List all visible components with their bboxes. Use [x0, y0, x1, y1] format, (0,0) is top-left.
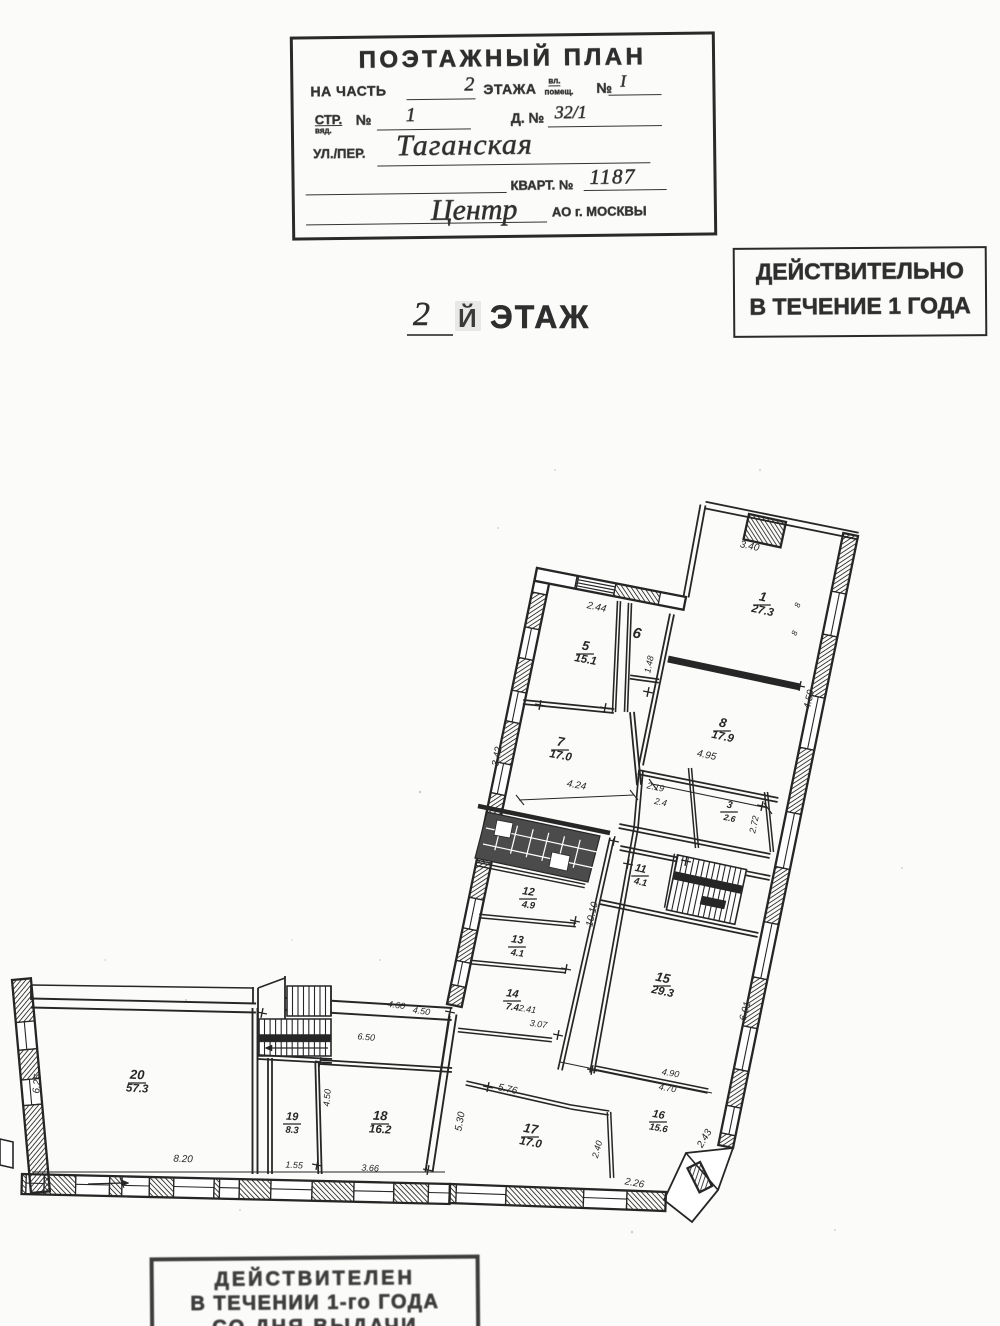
svg-text:2.40: 2.40: [590, 1139, 604, 1159]
svg-text:8: 8: [718, 715, 729, 731]
svg-text:13: 13: [511, 933, 525, 947]
svg-text:1.55: 1.55: [285, 1160, 304, 1171]
svg-text:7: 7: [556, 734, 566, 750]
svg-text:2.43: 2.43: [695, 1127, 715, 1151]
svg-text:2.6: 2.6: [722, 812, 737, 825]
svg-text:2.72: 2.72: [747, 815, 761, 835]
svg-text:2.4: 2.4: [652, 796, 667, 809]
svg-text:17.0: 17.0: [518, 1135, 543, 1151]
svg-text:8: 8: [793, 601, 803, 609]
svg-text:57.3: 57.3: [126, 1082, 150, 1095]
svg-text:4.50: 4.50: [412, 1005, 431, 1017]
svg-text:1: 1: [758, 589, 768, 605]
svg-text:3: 3: [726, 800, 734, 812]
svg-text:6: 6: [631, 624, 643, 642]
svg-text:19: 19: [286, 1111, 300, 1124]
svg-text:4.95: 4.95: [696, 748, 718, 763]
svg-text:10.10: 10.10: [584, 901, 600, 928]
svg-text:29.3: 29.3: [649, 984, 675, 1001]
svg-text:4.90: 4.90: [661, 1067, 680, 1080]
svg-text:17.9: 17.9: [710, 729, 735, 746]
svg-text:20: 20: [129, 1067, 146, 1083]
svg-text:8.3: 8.3: [285, 1125, 299, 1137]
svg-text:2.41: 2.41: [517, 1003, 537, 1015]
svg-text:17: 17: [522, 1120, 540, 1137]
svg-text:8.20: 8.20: [173, 1154, 193, 1166]
svg-text:16: 16: [651, 1108, 666, 1122]
svg-text:4.50: 4.50: [321, 1089, 332, 1107]
svg-text:11: 11: [634, 862, 648, 876]
svg-text:18: 18: [373, 1108, 389, 1124]
svg-text:5.30: 5.30: [453, 1111, 467, 1133]
svg-text:5: 5: [581, 638, 591, 654]
svg-text:4.1: 4.1: [632, 876, 648, 890]
svg-text:27.3: 27.3: [749, 603, 775, 620]
svg-text:16.2: 16.2: [369, 1123, 393, 1136]
svg-text:2.44: 2.44: [585, 600, 608, 615]
svg-text:15.6: 15.6: [648, 1122, 669, 1136]
svg-text:6.25: 6.25: [31, 1073, 44, 1094]
svg-text:4.60: 4.60: [387, 999, 406, 1011]
svg-text:6.50: 6.50: [357, 1031, 375, 1042]
svg-text:4.70: 4.70: [658, 1082, 677, 1095]
svg-text:1.48: 1.48: [642, 655, 655, 674]
svg-text:15.1: 15.1: [573, 652, 597, 668]
svg-text:17.0: 17.0: [548, 748, 573, 764]
svg-text:4.9: 4.9: [520, 899, 536, 912]
svg-text:3.07: 3.07: [529, 1018, 549, 1030]
svg-text:2.19: 2.19: [645, 780, 665, 794]
svg-text:12: 12: [522, 885, 536, 899]
svg-text:5.76: 5.76: [497, 1082, 519, 1097]
svg-text:2.26: 2.26: [623, 1176, 645, 1190]
svg-text:4.1: 4.1: [509, 947, 525, 960]
svg-text:4.24: 4.24: [566, 778, 588, 792]
svg-text:14: 14: [506, 987, 520, 1001]
svg-text:3.66: 3.66: [361, 1163, 379, 1174]
svg-text:8: 8: [790, 629, 800, 637]
